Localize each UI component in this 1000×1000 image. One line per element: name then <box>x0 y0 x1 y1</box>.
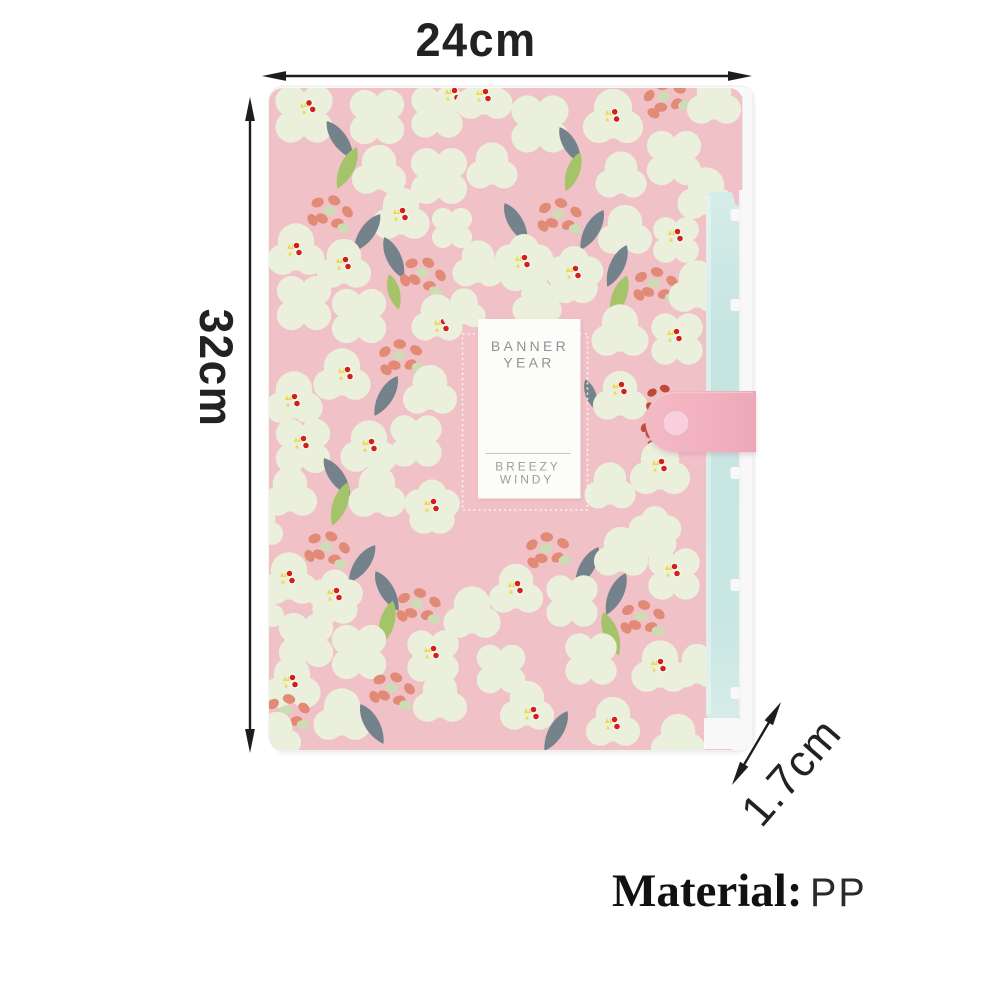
svg-text:BREEZY: BREEZY <box>495 460 560 474</box>
svg-text:YEAR: YEAR <box>503 355 554 371</box>
svg-text:BANNER: BANNER <box>491 338 569 354</box>
svg-text:24cm: 24cm <box>415 13 536 66</box>
svg-text:32cm: 32cm <box>190 309 243 428</box>
svg-text:PP: PP <box>810 871 867 915</box>
svg-text:WINDY: WINDY <box>500 473 555 487</box>
svg-text:Material:: Material: <box>612 865 803 917</box>
